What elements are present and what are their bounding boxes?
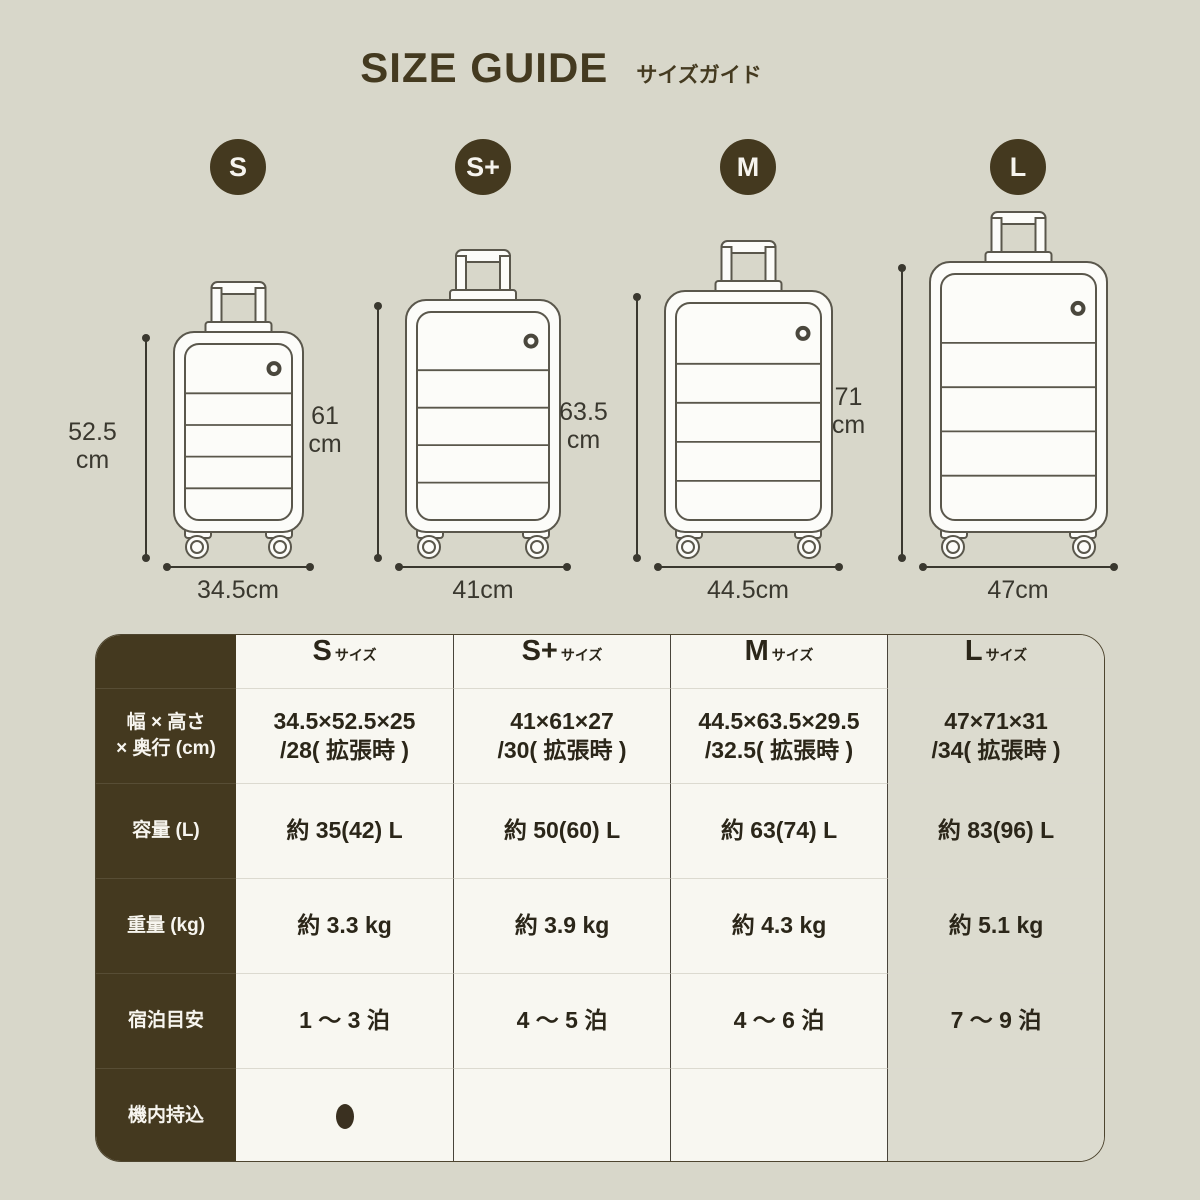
page-title: SIZE GUIDE (360, 44, 608, 92)
dimension-value: 47×71×31 (944, 707, 1048, 736)
width-dimension-label-l: 47cm (918, 576, 1118, 604)
table-header-s-plus: S+サイズ (453, 635, 670, 688)
cell-capacity-m: 約 63(74) L (670, 783, 887, 878)
row-label-dimensions: 幅 × 高さ × 奥行 (cm) (96, 688, 236, 783)
cell-weight-s: 約 3.3 kg (236, 878, 453, 973)
width-dimension-line-s (167, 566, 310, 568)
height-dimension-label-s: 52.5cm (49, 418, 137, 474)
header-size-suffix: サイズ (335, 645, 377, 665)
cell-capacity-s: 約 35(42) L (236, 783, 453, 878)
cell-dimensions-m: 44.5×63.5×29.5 /32.5( 拡張時 ) (670, 688, 887, 783)
row-label-capacity: 容量 (L) (96, 783, 236, 878)
header-size-label: S (313, 635, 332, 668)
width-dimension-label-m: 44.5cm (648, 576, 848, 604)
header-size-label: M (745, 635, 769, 668)
cell-carry-on-s-plus (453, 1068, 670, 1162)
size-badge-m: M (720, 139, 776, 195)
cell-dimensions-l: 47×71×31 /34( 拡張時 ) (887, 688, 1104, 783)
header-size-label: L (965, 635, 983, 668)
cell-capacity-s-plus: 約 50(60) L (453, 783, 670, 878)
height-dimension-line-l (901, 268, 903, 558)
suitcase-illustration-s-plus (405, 248, 561, 560)
dimension-value: 41×61×27 (510, 707, 614, 736)
height-dimension-line-m (636, 297, 638, 558)
row-label-weight: 重量 (kg) (96, 878, 236, 973)
height-dimension-line-s-plus (377, 306, 379, 558)
cell-capacity-l: 約 83(96) L (887, 783, 1104, 878)
row-label-nights: 宿泊目安 (96, 973, 236, 1068)
height-dimension-label-l: 71cm (805, 383, 893, 439)
cell-nights-m: 4 〜 6 泊 (670, 973, 887, 1068)
cell-carry-on-s (236, 1068, 453, 1162)
width-dimension-label-s: 34.5cm (138, 576, 338, 604)
dimension-expanded-value: /32.5( 拡張時 ) (705, 736, 853, 765)
size-badge-l: L (990, 139, 1046, 195)
height-dimension-label-s-plus: 61cm (281, 402, 369, 458)
size-badge-s: S (210, 139, 266, 195)
dimension-expanded-value: /34( 拡張時 ) (931, 736, 1060, 765)
cell-weight-l: 約 5.1 kg (887, 878, 1104, 973)
table-header-s: Sサイズ (236, 635, 453, 688)
width-dimension-label-s-plus: 41cm (383, 576, 583, 604)
table-corner-cell (96, 635, 236, 688)
row-label-line2: × 奥行 (cm) (116, 736, 216, 762)
height-dimension-line-s (145, 338, 147, 558)
suitcase-illustration-l (929, 210, 1108, 560)
carry-on-allowed-dot (336, 1104, 354, 1129)
dimension-expanded-value: /30( 拡張時 ) (497, 736, 626, 765)
page-subtitle: サイズガイド (636, 59, 761, 89)
table-header-l: Lサイズ (887, 635, 1104, 688)
width-dimension-line-m (658, 566, 839, 568)
size-table: Sサイズ S+サイズ Mサイズ Lサイズ 幅 × 高さ × 奥行 (cm) 34… (95, 634, 1105, 1162)
header-size-label: S+ (522, 635, 558, 668)
header-size-suffix: サイズ (986, 645, 1028, 665)
cell-carry-on-l (887, 1068, 1104, 1162)
dimension-expanded-value: /28( 拡張時 ) (280, 736, 409, 765)
page-header: SIZE GUIDE サイズガイド (0, 44, 1122, 92)
cell-weight-s-plus: 約 3.9 kg (453, 878, 670, 973)
height-dimension-label-m: 63.5cm (540, 398, 628, 454)
size-badge-s-plus: S+ (455, 139, 511, 195)
header-size-suffix: サイズ (772, 645, 814, 665)
cell-dimensions-s: 34.5×52.5×25 /28( 拡張時 ) (236, 688, 453, 783)
cell-weight-m: 約 4.3 kg (670, 878, 887, 973)
width-dimension-line-l (923, 566, 1114, 568)
dimension-value: 44.5×63.5×29.5 (698, 707, 859, 736)
row-label-carry-on: 機内持込 (96, 1068, 236, 1162)
row-label-line1: 幅 × 高さ (127, 710, 206, 736)
cell-dimensions-s-plus: 41×61×27 /30( 拡張時 ) (453, 688, 670, 783)
cell-nights-s-plus: 4 〜 5 泊 (453, 973, 670, 1068)
cell-carry-on-m (670, 1068, 887, 1162)
cell-nights-l: 7 〜 9 泊 (887, 973, 1104, 1068)
width-dimension-line-s-plus (399, 566, 567, 568)
table-header-m: Mサイズ (670, 635, 887, 688)
cell-nights-s: 1 〜 3 泊 (236, 973, 453, 1068)
header-size-suffix: サイズ (561, 645, 603, 665)
dimension-value: 34.5×52.5×25 (274, 707, 416, 736)
